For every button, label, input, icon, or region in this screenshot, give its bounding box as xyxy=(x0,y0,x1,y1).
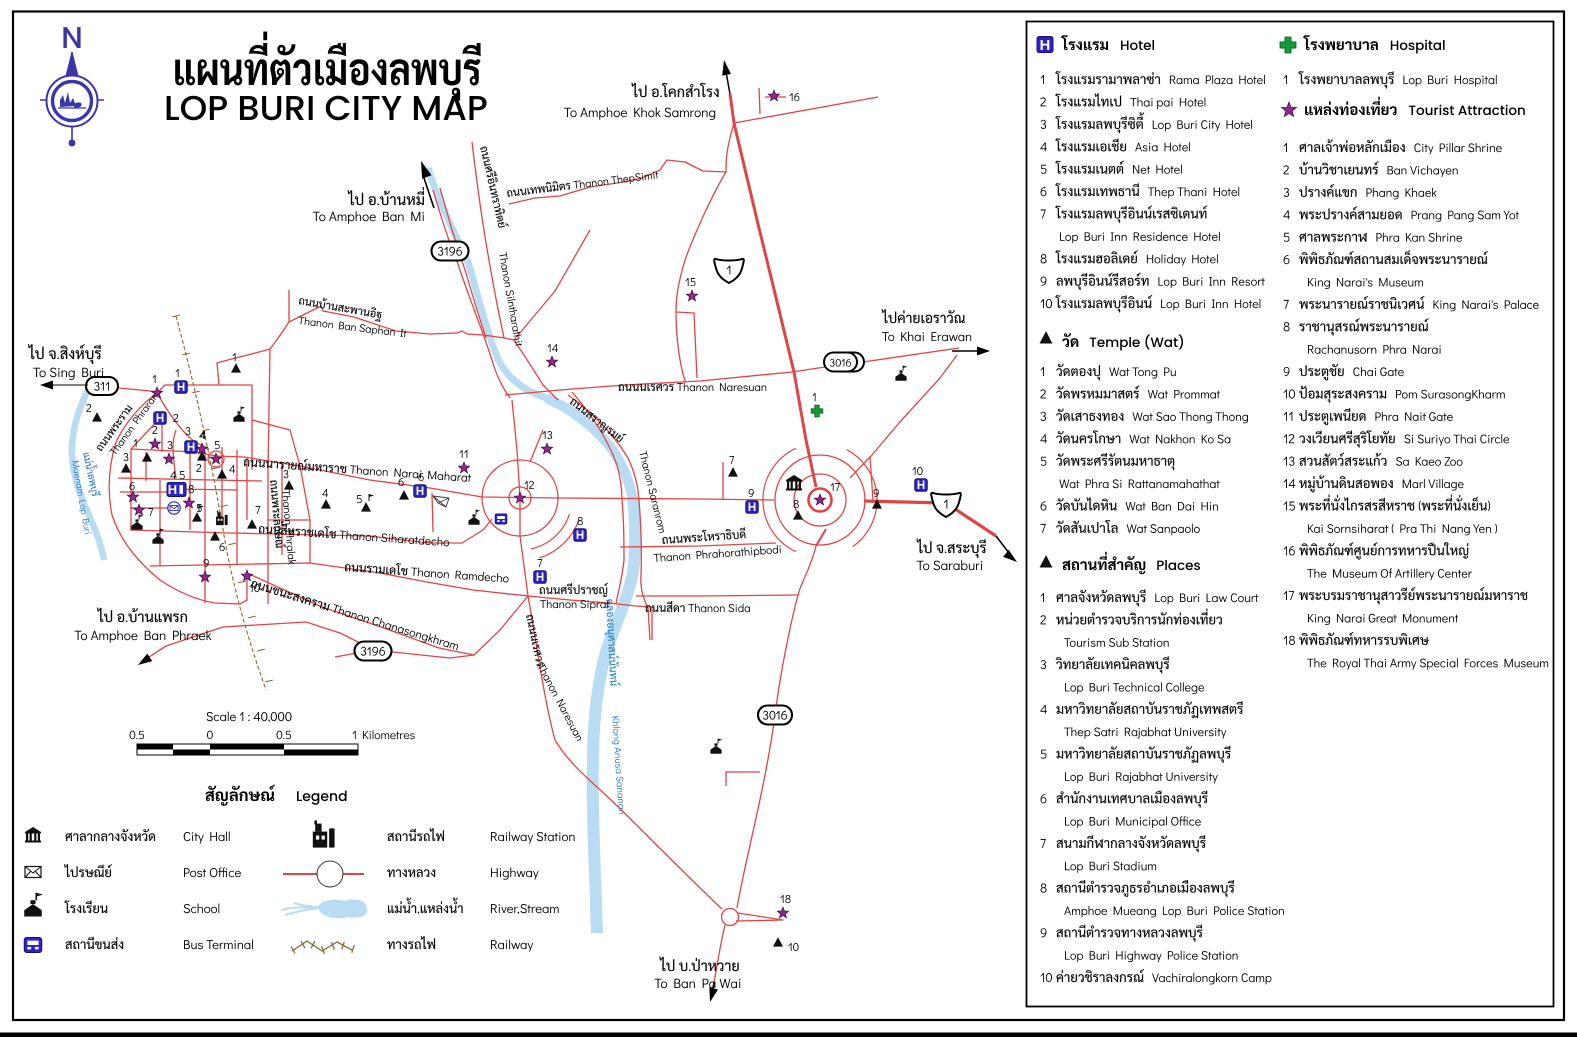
svg-text:H: H xyxy=(917,480,925,492)
svg-text:H: H xyxy=(177,382,185,394)
svg-text:H: H xyxy=(1040,38,1051,54)
svg-text:H: H xyxy=(536,572,544,584)
svg-text:H: H xyxy=(748,502,756,514)
svg-text:H: H xyxy=(187,442,195,454)
svg-text:H: H xyxy=(168,482,177,497)
svg-text:H: H xyxy=(416,486,424,498)
svg-text:H: H xyxy=(156,413,164,425)
svg-text:H: H xyxy=(576,530,584,542)
